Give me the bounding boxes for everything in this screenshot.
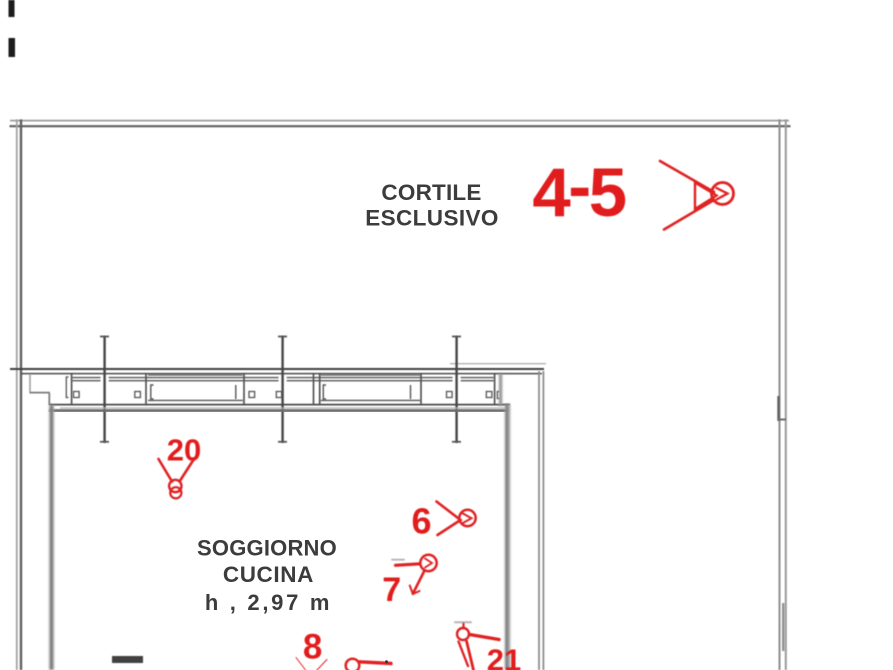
svg-text:7: 7 — [382, 571, 401, 609]
svg-text:4-5: 4-5 — [532, 148, 625, 232]
svg-text:SOGGIORNO: SOGGIORNO — [197, 535, 337, 560]
svg-text:CUCINA: CUCINA — [223, 562, 314, 587]
svg-text:ESCLUSIVO: ESCLUSIVO — [365, 206, 499, 231]
svg-text:CORTILE: CORTILE — [381, 180, 481, 205]
svg-text:8: 8 — [303, 628, 322, 667]
svg-text:6: 6 — [411, 501, 431, 542]
svg-text:20: 20 — [167, 433, 201, 468]
svg-text:21: 21 — [487, 643, 521, 670]
svg-text:h , 2,97 m: h , 2,97 m — [205, 590, 332, 615]
